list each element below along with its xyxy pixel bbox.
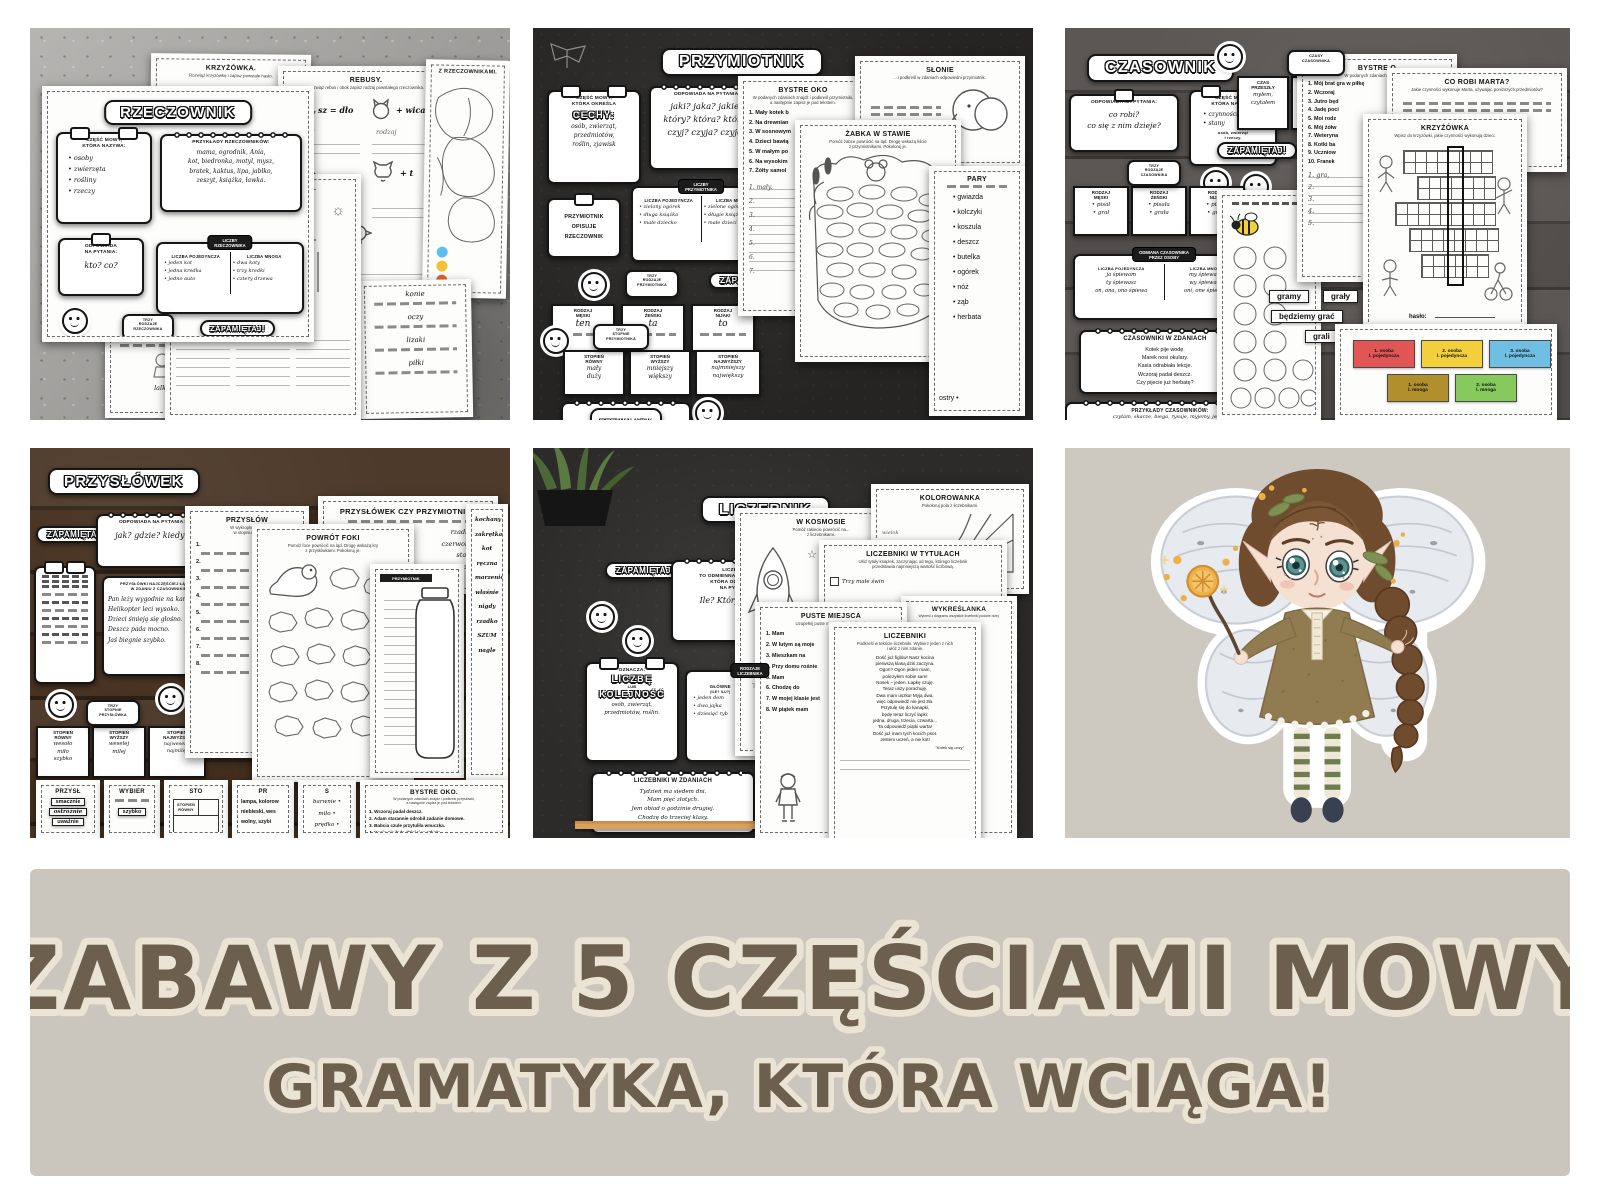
worksheet-title: PARY [939,176,1015,183]
text-squiggle [42,641,88,644]
worksheet-subtitle: Pokoloruj pola z liczebnikami. [882,503,1018,508]
word: piłki [370,358,462,368]
worksheet-title: POWRÓT FOKI [263,535,403,542]
handwriting-squiggle [1403,109,1551,112]
poster-title-pill: RZECZOWNIK [104,100,252,125]
worksheet-jar: PRZYMIOTNIK [370,564,464,778]
poster-title-pill: PRZYMIOTNIK [661,48,823,76]
card-keyword: CECHY: [553,110,635,120]
word-pill: będziemy grać [1271,310,1343,323]
worksheet-title: LICZEBNIKI W TYTUŁACH [830,551,996,558]
handwriting-squiggle [871,106,941,109]
text-squiggle [42,633,88,636]
bottom-card-wybierz: WYBIER szybko [104,780,160,838]
rebus-text: + t [400,168,413,178]
word-pill: gramy [1269,290,1309,303]
panel-przyslowek: PRZYSŁÓWEK ZAPAMIĘTAJ! ODPOWIADA NA PYTA… [30,448,510,838]
banner-line2: GRAMATYKA, KTÓRA WCIĄGA! [266,1051,1333,1122]
word-box: szybko [118,808,147,816]
worksheet-title: PUSTE MIEJSCA [766,613,896,620]
stopien-box: STOPIEŃ WYŻSZY mniejszy większy [629,350,691,396]
bee-icon [1229,211,1263,239]
card-title: PR [241,789,285,795]
plant-icon [533,448,647,526]
card-title: STO [173,789,219,795]
bottom-card-stopniowanie: STO STOPIEŃ RÓWNY [164,780,228,838]
card-title: WYBIER [113,789,151,795]
word-box: smacznie [51,798,86,806]
stopien-title: STOPIEŃ WYŻSZY [633,354,687,365]
band-stopnie: TRZY STOPNIE PRZYMIOTNIKA [593,324,649,350]
card-keyword: KOLEJNOŚĆ [591,689,673,699]
worksheet-title: REBUSY. [289,77,443,84]
osoba-box-yellow: 2. osoba l. pojedyncza [1421,340,1483,368]
rebus-text: + wica [396,105,425,115]
clip-icon [599,657,619,670]
worksheet-pary: PARY • gwiazda • kolczyki • koszula • de… [929,166,1025,416]
writing-lines [840,752,970,770]
rebus-text: sz = dło [318,105,353,115]
checkbox-icon [830,577,839,586]
clip-icon [66,561,86,574]
card-przyklady-rzeczownikow: PRZYKŁADY RZECZOWNIKÓW: mama, ogrodnik, … [160,134,302,212]
handwriting-squiggle [1232,202,1306,205]
panel-liczebnik: LICZEBNIK ZAPAMIĘTAJ! LICZEBNIK TO ODMIE… [533,448,1033,838]
card-przyklady: PRZYKŁADY • mały kotek • miła pani • mło… [561,402,691,420]
card-definicja [34,566,96,684]
poem-text: Dość już figlów! Nasz kocina pierwszą kl… [840,655,970,744]
kid-sketch-icon [1373,154,1399,194]
card-question: kto? co? [64,261,138,270]
stopien-title: STOPIEŃ RÓWNY [40,730,86,741]
card-list: osób, zwierząt, przedmiotów, roślin, zja… [553,122,635,149]
poster-title: CZASOWNIK [1105,59,1216,77]
band-stopnie: TRZY STOPNIE PRZYSŁÓWKA [86,700,140,726]
card-title: S [307,789,347,795]
rodzaj-box: RODZAJ MĘSKI • pisał • grał [1073,186,1129,236]
handwriting-squiggle [700,333,746,336]
stopien-words: mniejszy większy [633,365,687,382]
panel-rzeczownik: KRZYŻÓWKA. Rozwiąż krzyżówkę i zapisz po… [30,28,510,420]
rodzaj-box: RODZAJ ŻEŃSKI • pisała • grała [1131,186,1187,236]
worksheet-krzyzowka: KRZYŻÓWKA Wpisz do krzyżówki, jakie czyn… [1363,114,1527,332]
czas-title: CZAS PRZESZŁY [1241,80,1285,91]
text-squiggle [42,625,88,628]
rodzaj-title: RODZAJ MĘSKI [1077,190,1125,201]
worksheet-subtitle: Pomóż żabce powrócić na ląd. Drogę wskaż… [806,139,950,150]
word-list: barwnie • miło • prędko • [307,797,347,832]
strip-words: kochany zakrętka kot ręczna marzenie wła… [475,513,499,658]
zapamietaj-pill: ZAPAMIĘTAJ! [1217,142,1297,159]
handwriting-squiggle [947,185,1007,188]
czas-box: CZAS PRZESZŁY myłem, czytałem [1237,76,1289,130]
poster-title: PRZYSŁÓWEK [64,473,184,490]
sun-icon: ☼ [331,202,345,219]
worksheet-title: PRZYSŁÓW [196,517,298,524]
text-squiggle [42,575,88,578]
worksheet-subtitle: Ułóż tytuły książek, zaczynając od tego,… [830,559,996,570]
worksheet-subtitle: Wpisz do krzyżówki, jakie czynności wyko… [1374,133,1516,138]
sentence-list: 1. Wczoraj padał deszcz. 2. Adam starann… [369,808,499,833]
stopien-words: mały duży [567,365,621,382]
rodzaj-title: RODZAJ ŻEŃSKI [1135,190,1183,201]
card-title: BYSTRE OKO. [369,789,499,796]
worksheet-subtitle: Pomóż foce powrócić na ląd. Drogę wskażą… [263,543,403,554]
osoba-box-blue: 3. osoba l. pojedyncza [1489,340,1551,368]
handwriting-squiggle [348,520,468,523]
worksheet-words: konie oczy lizaki piłki [359,279,473,419]
worksheet-title: CO ROBI MARTA? [1398,79,1556,86]
worksheet-title: Z RZECZOWNIKAMI. [435,68,501,75]
kid-on-bike-icon [1483,260,1513,302]
haslo-line [1435,317,1495,318]
word: lizaki [370,335,462,345]
przyklady-label: PRZYKŁADY [600,419,652,420]
card-question: co robi? co się z nim dzieje? [1075,109,1173,132]
column-list: ja śpiewam ty śpiewasz on, ona, ono śpie… [1081,271,1162,295]
rodzaj-words: • pisał • grał [1077,201,1125,218]
smiley-icon [1217,44,1243,70]
answer-label: rodzaj [376,128,397,136]
title-item: Trzy małe świn [842,579,884,585]
worksheet-subtitle: Podkreśl w tekście liczebniki. Wybierz j… [840,641,970,652]
stopien-title: STOPIEŃ RÓWNY [567,354,621,365]
stopien-words: weselej milej [96,741,142,757]
band-text: TRZY RODZAJE PRZYMIOTNIKA [629,274,675,287]
kid-sketch-icon [1491,176,1517,216]
word-pill: grały [1323,290,1358,303]
worksheet-title: LICZEBNIKI [840,633,970,640]
card-subtitle: W podanych zdaniach znajdź i podkreśl pr… [369,797,499,806]
card-title: LICZEBNIKI W ZDANIACH [597,778,749,786]
stopien-title: STOPIEŃ NAJWYŻSZY [699,354,757,365]
worksheet-title: PRZYSŁÓWEK CZY PRZYMIOTNIK? [329,507,487,516]
clip-icon [561,85,581,98]
bottom-card-przysl: PRZYSŁ smacznie ostrożnie uważnie [36,780,100,838]
smiley-icon [589,604,615,630]
card-czesc-mowy: CZĘŚĆ MOWY, KTÓRA NAZYWA: • osoby • zwie… [56,132,152,224]
card-subtext: osób, zwierząt, przedmiotów, roślin. [591,701,673,717]
promo-image: KRZYŻÓWKA. Rozwiąż krzyżówkę i zapisz po… [0,0,1600,1200]
band-czasy: CZASY CZASOWNIKA [1287,50,1345,76]
card-title: PRZYKŁADY RZECZOWNIKÓW: [166,140,296,146]
smiley-icon [625,628,651,654]
handwriting-squiggle [1403,102,1551,105]
stopien-box: STOPIEŃ NAJWYŻSZY najmniejszy największy [695,350,761,396]
bottom-card-bystre-oko: BYSTRE OKO. W podanych zdaniach znajdź i… [360,780,508,838]
worksheet-subtitle: Wykreśl z diagramu wszystkie liczebniki … [911,614,1007,618]
panel-fairy [1065,448,1570,838]
pencil-icon [575,818,785,832]
band-trzy-rodzaje: TRZY RODZAJE CZASOWNIKA [1127,160,1181,186]
clip-icon [118,127,138,140]
worksheet-liczebniki-poem: LICZEBNIKI Podkreśl w tekście liczebniki… [829,622,981,838]
card-opisuje: PRZYMIOTNIK OPISUJE RZECZOWNIK [547,198,621,258]
column-list: • zielony ogórek • długa książka • małe … [639,203,699,227]
worksheet-title: WYKREŚLANKA [911,606,1007,613]
zapamietaj-label: ZAPAMIĘTAJ! [1228,146,1286,155]
card-liczby: LICZBY RZECZOWNIKA LICZBA POJEDYNCZA • j… [156,242,304,314]
card-subtext: osób, zwierząt i rzeczy. [1195,130,1271,140]
text-squiggle [42,593,88,596]
band-text: TRZY RODZAJE RZECZOWNIKA [126,318,170,331]
card-title: PRZYSŁ [45,789,91,795]
text-squiggle [42,609,88,612]
clip-icon [645,657,665,670]
text-squiggle [42,585,88,588]
card-words: mama, ogrodnik, Ania, kot, biedronka, mo… [166,148,296,185]
worksheet-title: BYSTRE OKO [749,87,857,94]
worksheet-kolorowanka-rzeczowniki: Z RZECZOWNIKAMI. [422,59,510,298]
worksheet-word-strip: kochany zakrętka kot ręczna marzenie wła… [466,504,508,780]
haslo-label: hasło: [1409,314,1427,320]
word: oczy [369,312,461,322]
banner-line1: ZABAWY Z 5 CZĘŚCIAMI MOWY [30,927,1570,1030]
fox-icon [370,160,396,191]
stopien-words: najmniejszy największy [699,365,757,381]
przyklady-pill: PRZYKŁADY [590,408,662,420]
rodzaj-title: RODZAJ MĘSKI [555,308,611,319]
clip-icon [70,127,90,140]
worksheet-subtitle: W podanych zdaniach znajdź i podkreśl pr… [749,95,857,106]
osoba-box-green: 2. osoba l. mnoga [1455,374,1517,402]
coloring-shapes [432,77,503,248]
czas-words: myłem, czytałem [1241,91,1285,107]
poster-title: RZECZOWNIK [120,104,236,121]
text-squiggle [42,601,88,604]
table-header: STOPIEŃ RÓWNY [174,800,199,815]
banner: ZABAWY Z 5 CZĘŚCIAMI MOWY GRAMATYKA, KTÓ… [30,869,1570,1176]
zapamietaj-label: ZAPAMIĘTAJ! [616,566,674,575]
zapamietaj-label: ZAPAMIĘTAJ! [210,324,265,333]
card-odpowiada: ODPOWIADA NA PYTANIA: co robi? co się z … [1069,94,1179,152]
word: konie [369,289,461,299]
worksheet-title: ŻABKA W STAWIE [806,131,950,138]
osoba-box-olive: 1. osoba l. mnoga [1387,374,1449,402]
card-band: ODMIANA CZASOWNIKA PRZEZ OSOBY [1132,247,1196,262]
jar-icon [414,586,456,762]
poster-title-pill: PRZYSŁÓWEK [48,468,200,495]
fairy-illustration [1135,448,1495,838]
column-list: • dwa koty • trzy kredki • cztery drzewa [233,259,297,283]
cat-icon [370,98,394,127]
handwriting-squiggle [375,370,457,374]
card-band: LICZBY RZECZOWNIKA [207,235,252,250]
card-text: PRZYMIOTNIK OPISUJE RZECZOWNIK [564,213,603,242]
boy-icon [769,772,807,828]
handwriting-squiggle [115,799,149,802]
stopien-box: STOPIEŃ RÓWNY mały duży [563,350,625,396]
star-icon: ☆ [807,548,817,561]
card-band: RODZAJE LICZEBNIKA [730,663,769,678]
clip-icon [91,233,111,246]
rodzaj-title: RODZAJ ŻEŃSKI [625,308,681,319]
clip-icon [44,561,64,574]
smiley-icon [581,272,607,298]
worksheet-title: KRZYŻÓWKA [1374,125,1516,132]
word-list: • gwiazda • kolczyki • koszula • deszcz … [953,190,1015,325]
panel-przymiotnik: PRZYMIOTNIK CZĘŚĆ MOWY, KTÓRA OKREŚLA CE… [533,28,1033,420]
stopien-words: wesoło miło szybko [40,741,86,764]
clip-icon [574,193,594,206]
smiley-icon [62,308,88,334]
band-text: CZASY CZASOWNIKA [1291,54,1341,63]
word-box: ostrożnie [49,808,88,816]
crossword-row [1395,202,1496,226]
handwriting-squiggle [375,324,457,328]
word-box: uważnie [52,818,83,826]
handwriting-squiggle [375,347,457,351]
zapamietaj-pill: ZAPAMIĘTAJ! [200,320,275,337]
worksheet-title: KOLOROWANKA [882,495,1018,502]
panel-czasownik: CZASOWNIK ODPOWIADA NA PYTANIA: co robi?… [1065,28,1570,420]
card-odpowiada: ODPOWIADA NA PYTANIA: kto? co? [58,238,144,296]
osoba-box-red: 1. osoba l. pojedyncza [1353,340,1415,368]
text-squiggle [42,617,88,620]
poster-title: PRZYMIOTNIK [679,53,805,71]
worksheet-title: SŁONIE [866,67,1014,74]
text-squiggle [42,580,88,583]
card-list: • osoby • zwierzęta • rośliny • rzeczy [68,153,146,197]
card-cechy: CZĘŚĆ MOWY, KTÓRA OKREŚLA CECHY: osób, z… [547,90,641,184]
stopien-box: STOPIEŃ WYŻSZY weselej milej [92,726,146,778]
jar-label: PRZYMIOTNIK [380,574,432,582]
stopien-box: STOPIEŃ RÓWNY wesoło miło szybko [36,726,90,778]
clip-icon [1201,85,1221,98]
banner-text-svg: ZABAWY Z 5 CZĘŚCIAMI MOWY GRAMATYKA, KTÓ… [30,869,1570,1176]
moth-sketch-icon [545,42,589,82]
band-trzy-rodzaje: TRZY RODZAJE RZECZOWNIKA [122,314,174,337]
bottom-card-polacz: S barwnie • miło • prędko • [298,780,356,838]
band-text: TRZY STOPNIE PRZYSŁÓWKA [90,704,136,717]
card-band: LICZBY PRZYMIOTNIKA [678,179,724,194]
color-code-blue [437,247,448,258]
bottom-card-podkresl: PR lampa, kolorow niebieski, wes wolny, … [232,780,294,838]
color-code-yellow [436,260,447,271]
rodzaj-word: to [695,319,751,329]
clip-icon [607,85,627,98]
worksheet-subtitle: Jakie czynności wykonuje Marta, używając… [1398,87,1556,92]
kid-sketch-icon [1377,258,1403,298]
smiley-icon [158,686,184,712]
handwriting-squiggle [871,113,941,116]
smiley-icon [695,400,721,420]
column-list: • jeden kot • jedna kredka • jedno auto [164,259,228,283]
poster-rzeczownik: RZECZOWNIK CZĘŚĆ MOWY, KTÓRA NAZYWA: • o… [42,86,314,342]
band-text: TRZY STOPNIE PRZYMIOTNIKA [597,328,645,341]
band-text: TRZY RODZAJE CZASOWNIKA [1131,164,1177,177]
rodzaj-words: • pisała • grała [1135,201,1183,218]
worksheet-osoby: 1. osoba l. pojedyncza 2. osoba l. pojed… [1335,324,1557,420]
word-left: ostry • [939,395,959,402]
handwriting-squiggle [374,301,456,305]
clip-icon [1114,89,1134,102]
poster-title-pill: CZASOWNIK [1087,54,1234,82]
smiley-icon [48,692,74,718]
band-trzy-rodzaje: TRZY RODZAJE PRZYMIOTNIKA [625,270,679,298]
word-list: lampa, kolorow niebieski, wes wolny, szy… [241,798,285,828]
card-keyword: LICZBĘ [591,674,673,684]
crossword-answer-column [1447,146,1464,286]
stopien-title: STOPIEŃ WYŻSZY [96,730,142,741]
card-oznacza: OZNACZA: LICZBĘ LUB KOLEJNOŚĆ osób, zwie… [585,662,679,762]
word-pill: grali [1305,330,1338,343]
poem-credit: "Kotek się uczy" [840,745,964,750]
